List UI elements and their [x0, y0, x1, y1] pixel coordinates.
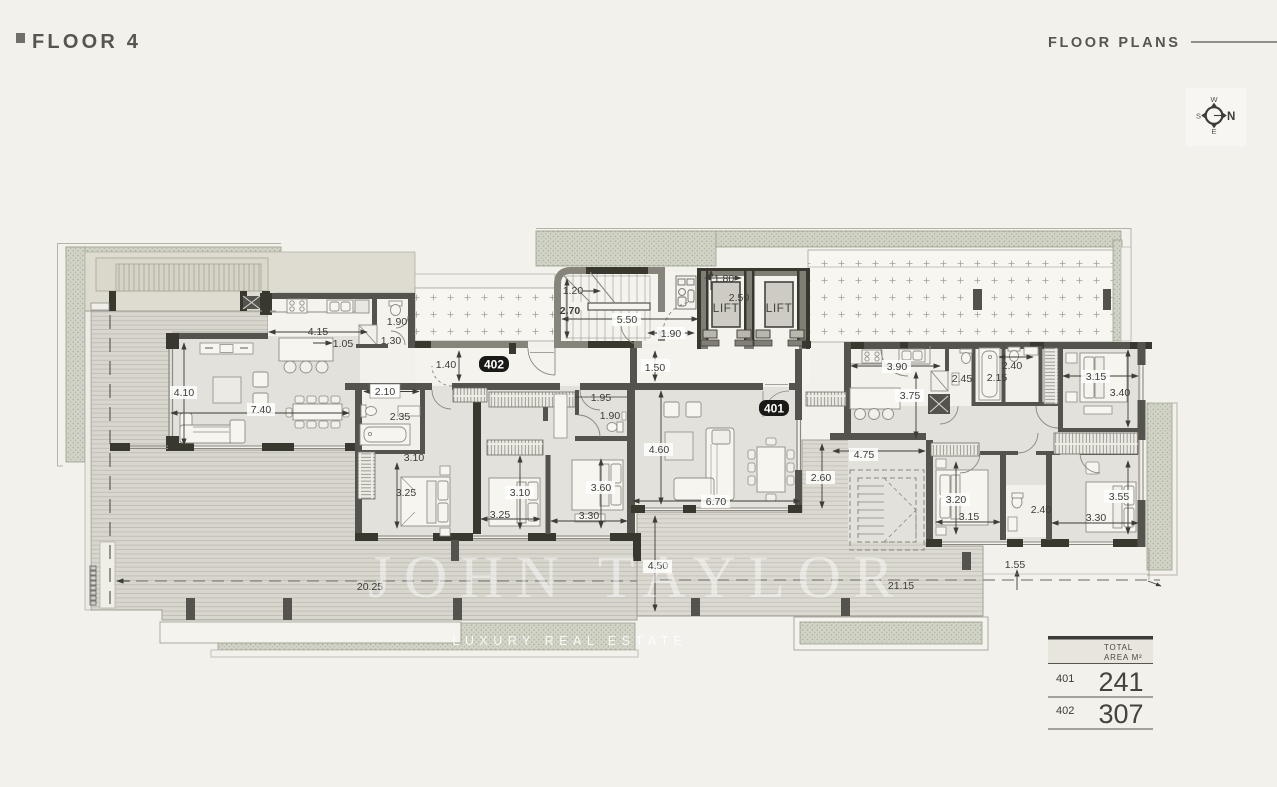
svg-text:3.30: 3.30: [579, 510, 600, 522]
svg-text:307: 307: [1098, 699, 1143, 729]
svg-text:3.60: 3.60: [591, 482, 612, 494]
svg-text:2.10: 2.10: [375, 386, 396, 398]
svg-text:FLOOR PLANS: FLOOR PLANS: [1048, 35, 1181, 51]
svg-text:TOTAL: TOTAL: [1104, 643, 1133, 652]
svg-text:3.40: 3.40: [1110, 387, 1131, 399]
svg-text:241: 241: [1098, 667, 1143, 697]
svg-text:2.50: 2.50: [729, 292, 750, 304]
svg-text:1.90: 1.90: [600, 410, 621, 422]
svg-text:6.70: 6.70: [706, 496, 727, 508]
svg-text:401: 401: [1056, 673, 1074, 685]
svg-text:1.95: 1.95: [591, 392, 612, 404]
svg-text:1.80: 1.80: [714, 273, 735, 285]
svg-text:1.40: 1.40: [436, 359, 457, 371]
svg-text:7.40: 7.40: [251, 404, 272, 416]
svg-text:4.15: 4.15: [308, 326, 329, 338]
svg-text:W: W: [1210, 95, 1218, 104]
svg-text:401: 401: [764, 402, 784, 416]
svg-text:402: 402: [484, 358, 504, 372]
svg-text:1.05: 1.05: [333, 338, 354, 350]
svg-text:3.75: 3.75: [900, 390, 921, 402]
svg-text:JOHN TAYLOR: JOHN TAYLOR: [368, 544, 906, 610]
svg-text:4.75: 4.75: [854, 449, 875, 461]
svg-text:1.90: 1.90: [387, 316, 408, 328]
svg-text:1.30: 1.30: [381, 335, 402, 347]
svg-text:2.15: 2.15: [987, 372, 1008, 384]
svg-text:1.55: 1.55: [1005, 559, 1026, 571]
svg-text:2.70: 2.70: [560, 305, 581, 317]
svg-text:1.20: 1.20: [563, 285, 584, 297]
svg-text:S: S: [1196, 112, 1201, 121]
svg-text:3.15: 3.15: [959, 511, 980, 523]
svg-text:LUXURY REAL ESTATE: LUXURY REAL ESTATE: [452, 634, 687, 648]
svg-text:3.30: 3.30: [1086, 512, 1107, 524]
svg-text:2.60: 2.60: [811, 472, 832, 484]
svg-text:N: N: [1227, 111, 1235, 123]
svg-text:2.40: 2.40: [1002, 360, 1023, 372]
svg-text:2.40: 2.40: [1031, 504, 1052, 516]
svg-text:3.90: 3.90: [887, 361, 908, 373]
svg-text:1.90: 1.90: [661, 328, 682, 340]
svg-text:2.35: 2.35: [390, 411, 411, 423]
svg-text:3.25: 3.25: [490, 509, 511, 521]
svg-text:2.45: 2.45: [952, 373, 973, 385]
svg-text:FLOOR 4: FLOOR 4: [32, 31, 141, 53]
svg-text:1.50: 1.50: [645, 362, 666, 374]
svg-text:3.15: 3.15: [1086, 371, 1107, 383]
svg-text:LIFT: LIFT: [766, 301, 793, 315]
svg-text:4.10: 4.10: [174, 387, 195, 399]
svg-text:E: E: [1211, 127, 1216, 136]
svg-text:5.50: 5.50: [617, 314, 638, 326]
svg-text:3.10: 3.10: [510, 487, 531, 499]
svg-text:3.10: 3.10: [404, 452, 425, 464]
svg-text:AREA M²: AREA M²: [1104, 653, 1143, 662]
svg-text:3.20: 3.20: [946, 494, 967, 506]
svg-text:3.25: 3.25: [396, 487, 417, 499]
svg-text:402: 402: [1056, 705, 1074, 717]
svg-text:3.55: 3.55: [1109, 491, 1130, 503]
svg-text:4.60: 4.60: [649, 444, 670, 456]
